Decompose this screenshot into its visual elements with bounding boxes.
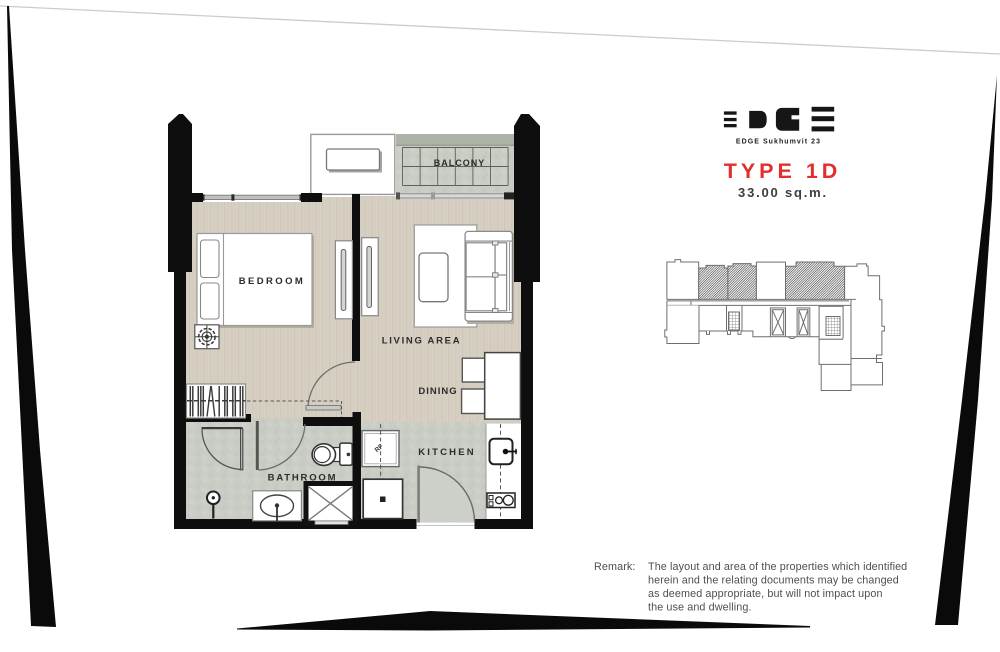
svg-text:as deemed appropriate, but wil: as deemed appropriate, but will not impa… xyxy=(648,588,883,600)
svg-text:The layout and area of the pro: The layout and area of the properties wh… xyxy=(648,561,907,573)
svg-text:33.00 sq.m.: 33.00 sq.m. xyxy=(738,185,828,200)
svg-text:herein and the relating docume: herein and the relating documents may be… xyxy=(648,575,899,587)
svg-text:TYPE 1D: TYPE 1D xyxy=(724,159,842,183)
svg-text:the use and dwelling.: the use and dwelling. xyxy=(648,602,752,614)
svg-text:BALCONY: BALCONY xyxy=(434,158,486,168)
svg-text:EDGE Sukhumvit 23: EDGE Sukhumvit 23 xyxy=(736,139,821,146)
svg-text:Remark:: Remark: xyxy=(594,561,636,573)
svg-text:DINING: DINING xyxy=(418,386,457,397)
svg-text:KITCHEN: KITCHEN xyxy=(418,447,476,458)
svg-text:BEDROOM: BEDROOM xyxy=(239,276,305,287)
svg-text:LIVING AREA: LIVING AREA xyxy=(382,336,462,347)
